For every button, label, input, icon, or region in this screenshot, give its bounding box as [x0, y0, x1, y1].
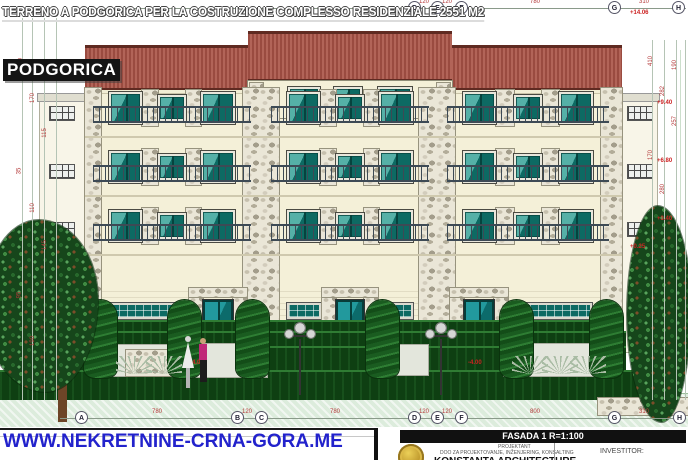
lamp-pole [299, 339, 301, 395]
dimension-value: 145 [42, 240, 48, 250]
drawing-title-bar: FASADA 1 R=1:100 [400, 430, 686, 443]
wing-window [49, 164, 75, 179]
person-woman [181, 336, 195, 392]
balcony-railing [447, 106, 609, 123]
dimension-value: 780 [530, 0, 540, 5]
person-legs [200, 360, 207, 382]
balcony-railing [93, 106, 251, 123]
wing-window [627, 164, 653, 179]
investor-label: INVESTITOR: [600, 448, 644, 455]
stone-door-lintel [450, 288, 508, 297]
elevation-mark: +3.40 [657, 216, 672, 222]
side-wing-cap [620, 94, 659, 101]
dimension-value: 95 [16, 292, 22, 299]
elevation-mark: +6.80 [657, 158, 672, 164]
balcony-railing [447, 224, 609, 241]
grid-bubble: F [455, 411, 468, 424]
grid-bubble: H [672, 1, 685, 14]
watermark-url-wrap: WWW.NEKRETNINE-CRNA-GORA.ME [3, 431, 343, 453]
grid-bubble: C [255, 411, 268, 424]
grid-bubble: A [75, 411, 88, 424]
city-label-wrap: PODGORICA [3, 59, 120, 81]
tree [627, 206, 688, 422]
ribbon-window [287, 303, 321, 319]
dimension-value: 170 [30, 93, 36, 103]
dimension-value: 410 [648, 56, 654, 66]
balcony-railing [271, 224, 429, 241]
lamp-globe [295, 323, 305, 333]
balcony-railing [271, 106, 429, 123]
elevation-mark: +9.40 [657, 100, 672, 106]
person-legs [186, 368, 190, 388]
person-dress [182, 342, 194, 368]
dimension-value: 282 [660, 86, 666, 96]
dimension-value: 280 [660, 184, 666, 194]
dimension-value: 257 [672, 116, 678, 126]
lamp-globe [285, 330, 293, 338]
tower-roof [248, 31, 452, 81]
wing-window [49, 106, 75, 121]
person-man [197, 338, 209, 394]
dimension-value: 780 [330, 409, 340, 415]
title-block-divider [554, 443, 555, 460]
street-lamp [424, 323, 458, 395]
spiral-topiary [236, 300, 269, 378]
floor-band-line [85, 195, 622, 197]
dimension-value: 115 [42, 128, 48, 138]
balcony-railing [93, 224, 251, 241]
elevation-mark: -4.00 [468, 360, 482, 366]
lamp-globe [436, 323, 446, 333]
dimension-value: 310 [639, 0, 649, 5]
dimension-value: 120 [419, 409, 429, 415]
wing-window [627, 106, 653, 121]
lamp-pole [440, 339, 442, 395]
balcony-railing [447, 165, 609, 182]
elevation-mark: +0.25 [630, 244, 645, 250]
dimension-value: 110 [30, 203, 36, 213]
balcony-railing [93, 165, 251, 182]
vertical-dimension-line [685, 40, 686, 400]
grid-bubble: G [608, 411, 621, 424]
vertical-dimension-line [652, 40, 653, 400]
watermark-url: WWW.NEKRETNINE-CRNA-GORA.ME [3, 431, 343, 452]
city-label: PODGORICA [3, 59, 120, 81]
lamp-globe [426, 330, 434, 338]
bottom-dimension-line [60, 418, 686, 419]
dimension-value: 780 [152, 409, 162, 415]
dimension-value: 190 [672, 60, 678, 70]
grid-bubble: H [673, 411, 686, 424]
street-lamp [283, 323, 317, 395]
drawing-title: FASADA 1 R=1:100 [502, 431, 583, 441]
dimension-value: 120 [442, 409, 452, 415]
side-wing-cap [38, 94, 87, 101]
person-torso [199, 344, 207, 360]
floor-band-line [85, 136, 622, 138]
architectural-drawing-canvas: DEFGH120120780310ABCDEFGH780120780120120… [0, 0, 688, 460]
banner-title-wrap: TERRENO A PODGORICA PER LA COSTRUZIONE C… [2, 3, 515, 22]
company-seal-logo [398, 444, 424, 460]
dimension-value: 800 [530, 409, 540, 415]
vertical-dimension-line [676, 40, 677, 400]
title-block: FASADA 1 R=1:100 PROJEKTANT DOO ZA PROJE… [374, 428, 688, 460]
agave-plant [570, 356, 606, 374]
spiral-topiary [366, 300, 399, 378]
dimension-value: 310 [639, 409, 649, 415]
person-head [185, 336, 191, 342]
dimension-value: 35 [16, 168, 22, 175]
stone-door-lintel [189, 288, 247, 297]
dimension-value: 190 [30, 336, 36, 346]
elevation-mark: +14.06 [630, 10, 649, 16]
dimension-value: 120 [242, 409, 252, 415]
stone-door-lintel [322, 288, 378, 297]
agave-plant [146, 356, 182, 374]
grid-bubble: G [608, 1, 621, 14]
dimension-value: 170 [648, 150, 654, 160]
lamp-globe [307, 330, 315, 338]
banner-title: TERRENO A PODGORICA PER LA COSTRUZIONE C… [2, 5, 484, 22]
balcony-railing [271, 165, 429, 182]
lamp-globe [448, 330, 456, 338]
floor-band-line [85, 254, 622, 256]
